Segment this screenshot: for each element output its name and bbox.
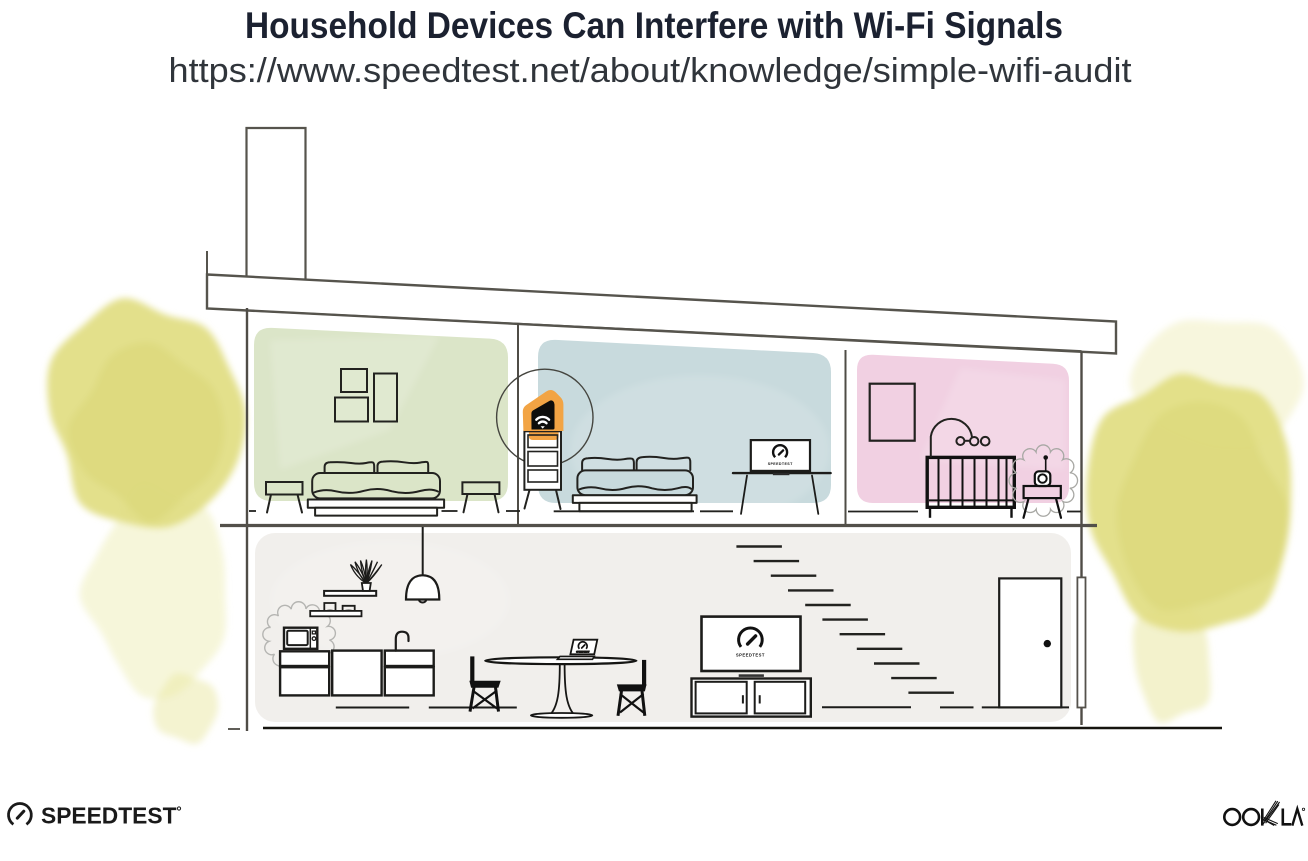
svg-text:SPEEDTEST: SPEEDTEST xyxy=(41,802,177,828)
svg-text:SPEEDTEST: SPEEDTEST xyxy=(736,653,765,658)
svg-text:Household Devices Can Interfer: Household Devices Can Interfere with Wi-… xyxy=(245,5,1063,46)
svg-text:https://www.speedtest.net/abou: https://www.speedtest.net/about/knowledg… xyxy=(169,52,1133,90)
svg-text:SPEEDTEST: SPEEDTEST xyxy=(768,462,793,466)
svg-text:SPEEDTEST: SPEEDTEST xyxy=(576,652,590,654)
